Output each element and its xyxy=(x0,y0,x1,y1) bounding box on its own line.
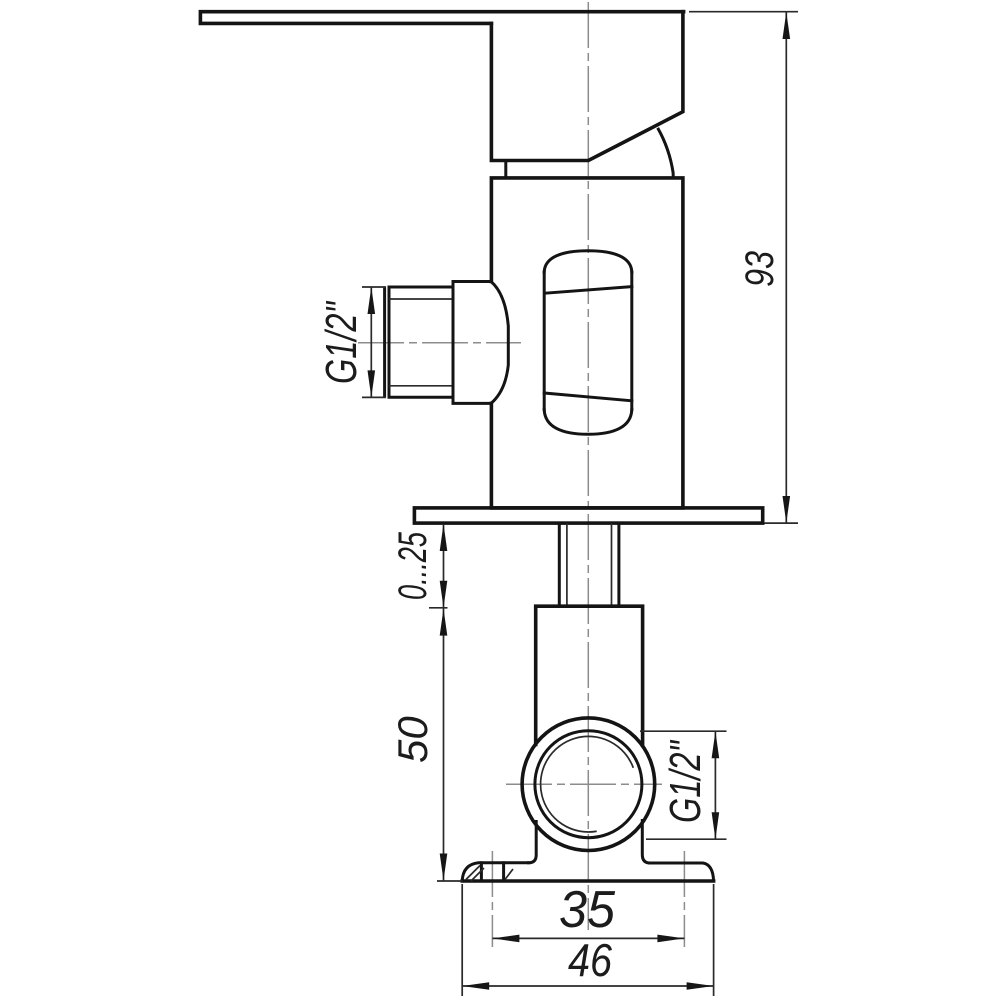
svg-text:46: 46 xyxy=(568,934,612,986)
svg-text:0...25: 0...25 xyxy=(391,531,435,600)
svg-text:50: 50 xyxy=(389,716,436,763)
svg-text:93: 93 xyxy=(738,251,782,287)
svg-text:G1/2": G1/2" xyxy=(317,300,366,384)
svg-text:35: 35 xyxy=(559,881,616,939)
svg-text:G1/2": G1/2" xyxy=(661,739,710,823)
